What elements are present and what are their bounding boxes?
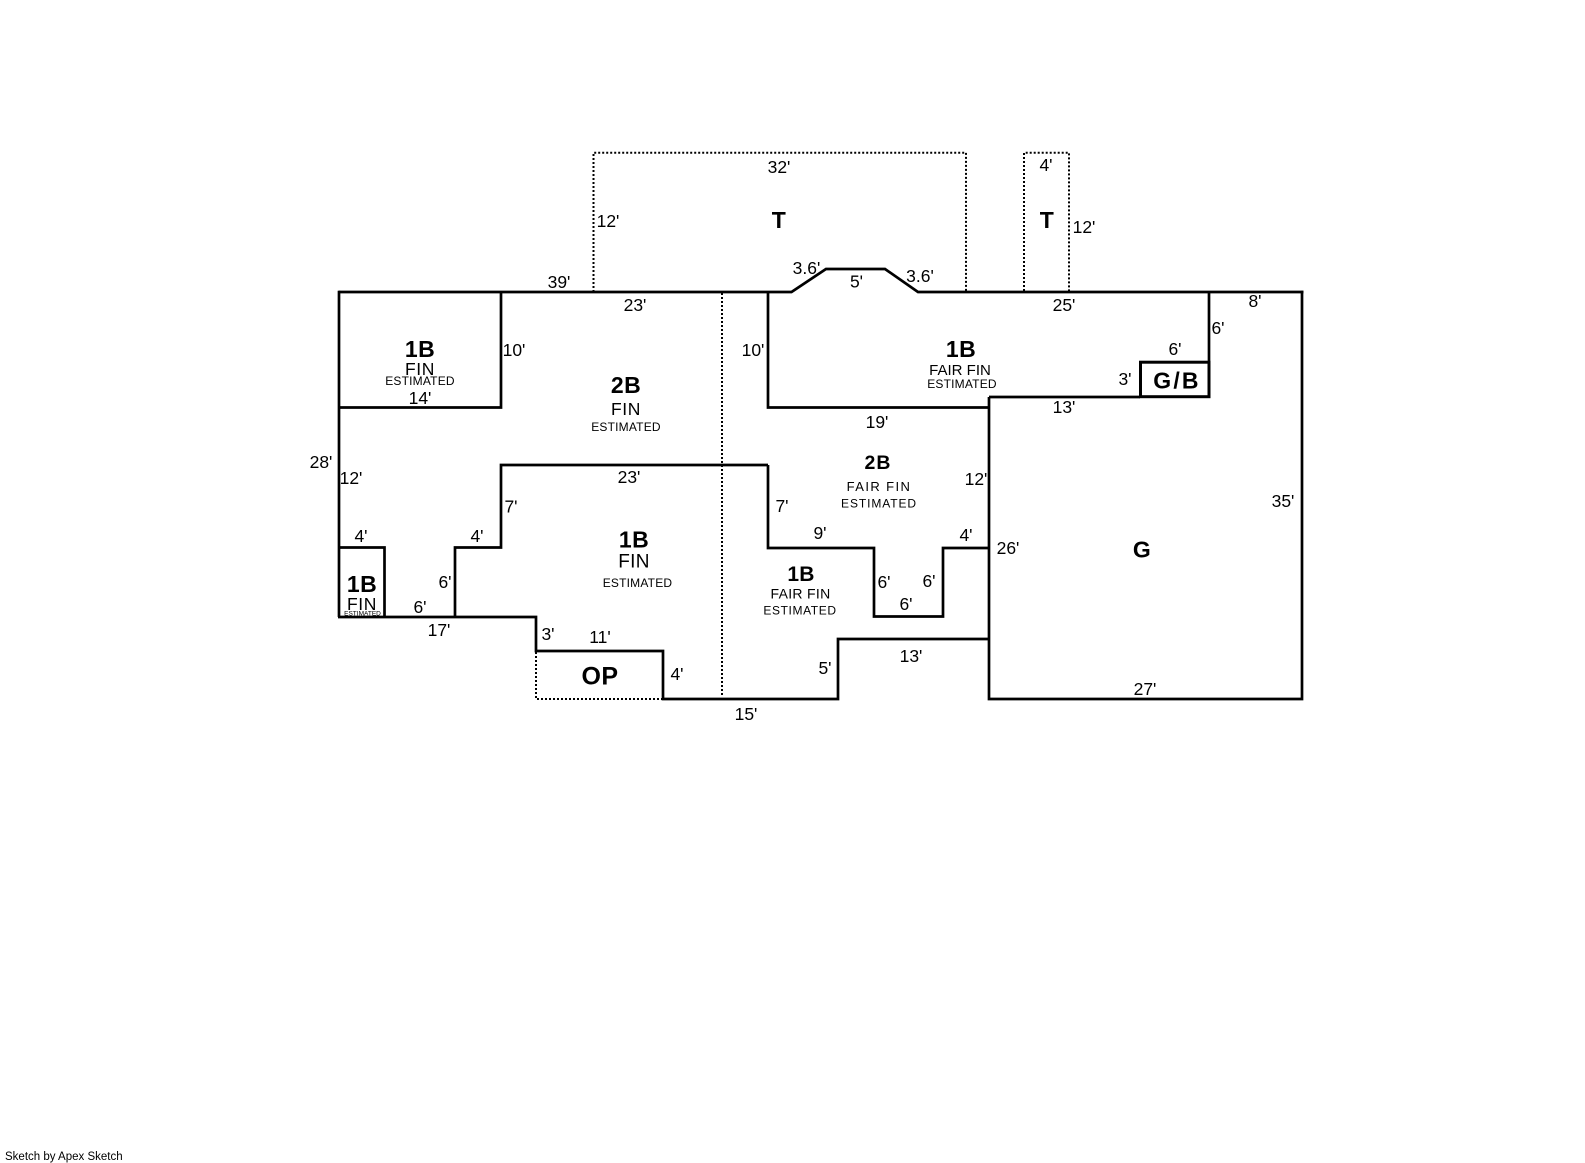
svg-text:T: T [1040,207,1054,233]
svg-text:ESTIMATED: ESTIMATED [763,604,836,618]
svg-text:ESTIMATED: ESTIMATED [344,610,381,617]
svg-text:15': 15' [735,704,758,724]
svg-text:7': 7' [504,497,517,517]
svg-text:12': 12' [965,469,988,489]
svg-text:1B: 1B [946,336,976,362]
svg-text:6': 6' [899,594,912,614]
svg-text:23': 23' [618,467,641,487]
svg-text:ESTIMATED: ESTIMATED [591,420,661,434]
svg-text:Sketch by Apex Sketch: Sketch by Apex Sketch [5,1151,123,1163]
svg-text:11': 11' [589,627,611,647]
svg-text:FAIR FIN: FAIR FIN [847,479,912,494]
svg-text:3.6': 3.6' [793,258,821,278]
svg-text:13': 13' [900,646,923,666]
svg-text:4': 4' [670,664,683,684]
svg-text:32': 32' [768,157,791,177]
svg-text:28': 28' [310,452,333,472]
svg-text:4': 4' [959,525,972,545]
svg-text:17': 17' [428,620,451,640]
svg-text:9': 9' [813,523,826,543]
svg-text:OP: OP [582,662,619,690]
svg-text:12': 12' [1073,217,1096,237]
svg-text:6': 6' [922,571,935,591]
svg-text:10': 10' [742,340,765,360]
svg-text:1B: 1B [787,563,814,586]
svg-text:35': 35' [1272,491,1295,511]
svg-text:23': 23' [624,295,647,315]
svg-text:27': 27' [1134,679,1157,699]
svg-text:FIN: FIN [618,552,650,573]
svg-text:6': 6' [413,597,426,617]
svg-text:ESTIMATED: ESTIMATED [385,374,455,388]
svg-text:FAIR FIN: FAIR FIN [771,586,831,602]
svg-text:19': 19' [866,412,889,432]
svg-text:3': 3' [1118,369,1131,389]
svg-text:14': 14' [409,388,432,408]
svg-text:13': 13' [1053,397,1076,417]
svg-text:5': 5' [850,272,863,292]
svg-text:6': 6' [1211,318,1224,338]
svg-text:6': 6' [438,572,451,592]
svg-text:4': 4' [354,526,367,546]
svg-text:FIN: FIN [611,399,641,419]
svg-text:2B: 2B [611,372,641,398]
svg-text:3.6': 3.6' [906,266,934,286]
svg-text:ESTIMATED: ESTIMATED [927,377,997,391]
svg-text:12': 12' [597,211,620,231]
svg-text:4': 4' [470,526,483,546]
svg-text:6': 6' [1168,339,1181,359]
svg-text:3': 3' [541,624,554,644]
svg-text:25': 25' [1053,295,1076,315]
svg-text:7': 7' [775,496,788,516]
svg-text:ESTIMATED: ESTIMATED [603,576,673,590]
svg-text:G: G [1133,537,1151,563]
svg-text:4': 4' [1039,155,1052,175]
svg-text:12': 12' [340,468,363,488]
svg-text:2B: 2B [865,452,892,474]
svg-text:39': 39' [548,272,571,292]
svg-text:8': 8' [1248,291,1261,311]
svg-text:1B: 1B [619,527,649,553]
svg-text:ESTIMATED: ESTIMATED [841,497,917,511]
svg-text:G/B: G/B [1153,367,1201,393]
svg-text:5': 5' [818,658,831,678]
svg-text:10': 10' [503,340,526,360]
svg-text:6': 6' [877,572,890,592]
svg-text:T: T [772,207,786,233]
svg-text:26': 26' [997,538,1020,558]
